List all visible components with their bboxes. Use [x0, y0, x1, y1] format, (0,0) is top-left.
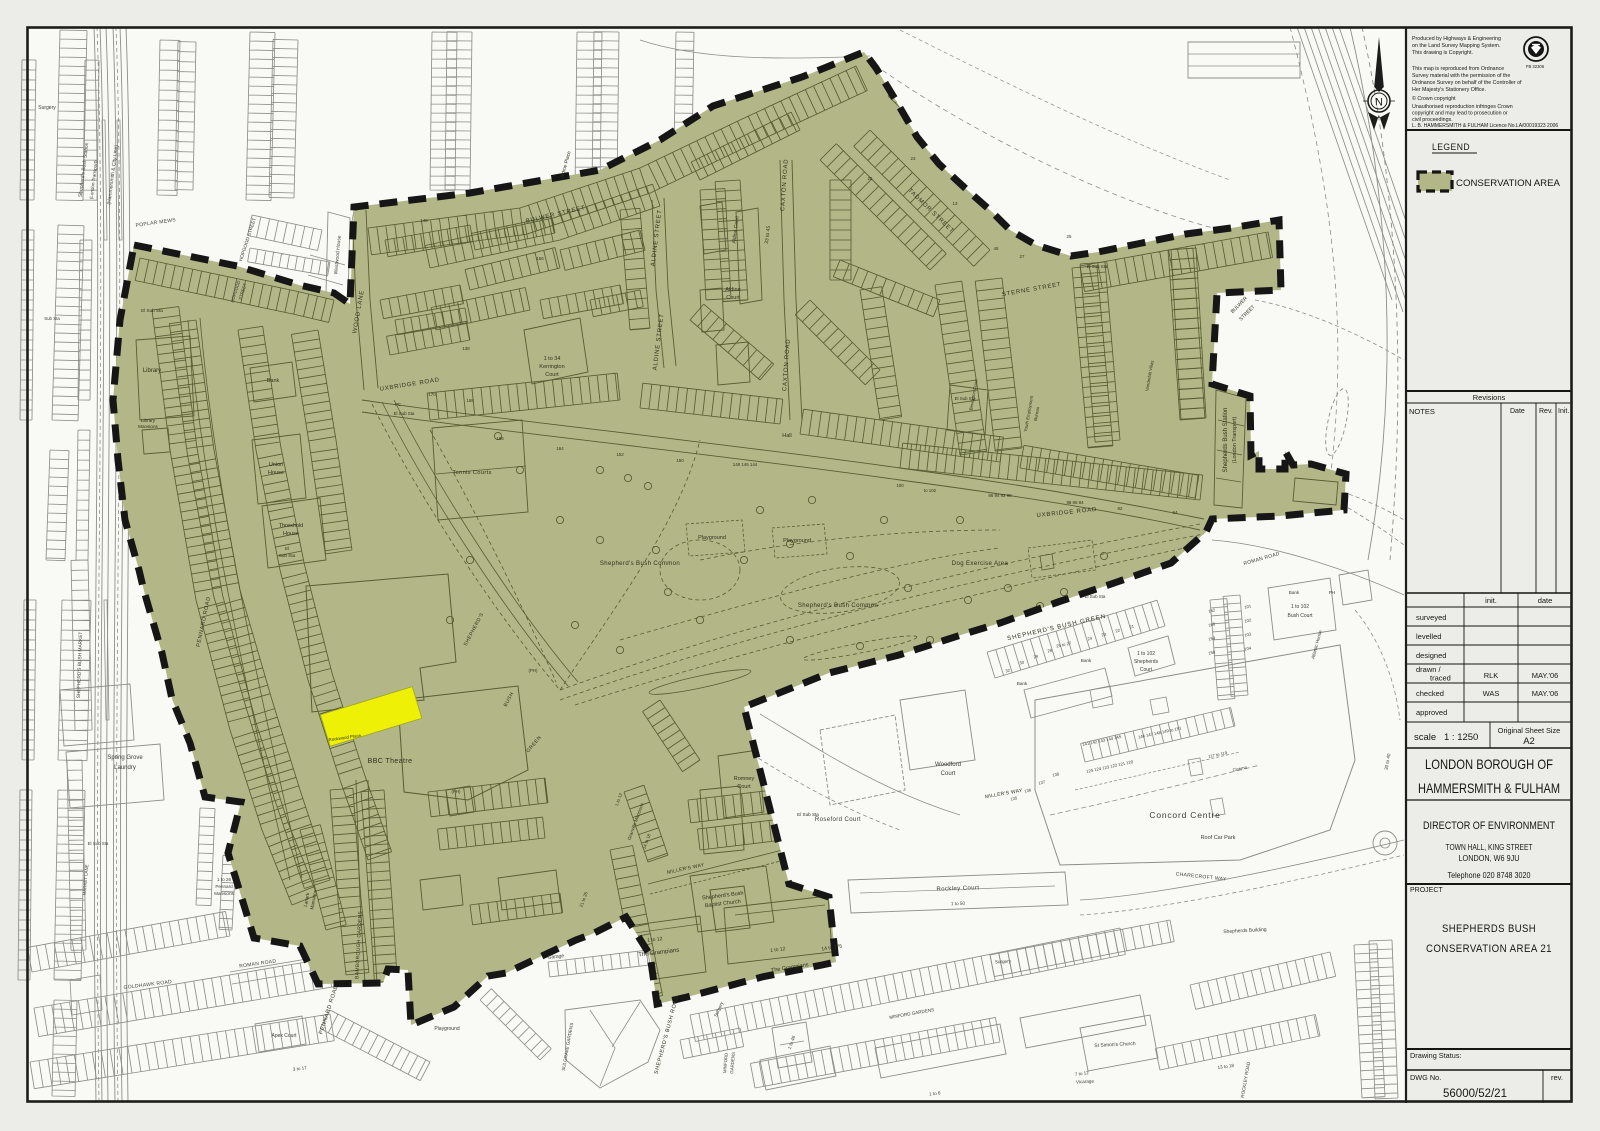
svg-text:This drawing is Copyright.: This drawing is Copyright. [1412, 50, 1473, 56]
svg-text:House: House [268, 470, 284, 476]
svg-text:1 to 102: 1 to 102 [1137, 651, 1155, 657]
svg-text:Telephone 020 8748 3020: Telephone 020 8748 3020 [1448, 870, 1531, 880]
svg-text:Roseford Court: Roseford Court [815, 817, 861, 823]
svg-text:Laundry: Laundry [114, 765, 136, 771]
svg-text:168: 168 [466, 398, 474, 403]
svg-text:Court: Court [545, 372, 559, 378]
svg-text:CONSERVATION AREA 21: CONSERVATION AREA 21 [1426, 943, 1552, 955]
svg-text:N: N [1375, 97, 1383, 109]
svg-text:(PH): (PH) [451, 789, 461, 794]
svg-text:LEGEND: LEGEND [1432, 142, 1470, 153]
svg-text:(London Transport): (London Transport) [1232, 416, 1238, 463]
svg-text:25: 25 [868, 176, 873, 181]
svg-text:date: date [1538, 596, 1553, 605]
svg-text:96 94 92 90: 96 94 92 90 [988, 493, 1012, 498]
svg-text:copyright and may lead to pros: copyright and may lead to prosecution or [1412, 111, 1508, 117]
svg-text:Playground: Playground [783, 538, 811, 544]
svg-text:Spring Grove: Spring Grove [107, 755, 143, 761]
svg-text:DWG No.: DWG No. [1410, 1073, 1441, 1082]
svg-text:Apex Court: Apex Court [271, 1033, 297, 1039]
svg-text:Init.: Init. [1558, 408, 1569, 415]
svg-text:1 : 1250: 1 : 1250 [1444, 732, 1478, 743]
svg-text:23: 23 [911, 156, 916, 161]
svg-text:scale: scale [1414, 732, 1436, 743]
svg-text:82: 82 [1118, 506, 1123, 511]
svg-text:on the Land Survey Mapping Sys: on the Land Survey Mapping System. [1412, 43, 1500, 49]
svg-text:HAMMERSMITH & FULHAM: HAMMERSMITH & FULHAM [1418, 780, 1560, 796]
svg-text:1 to 26: 1 to 26 [217, 877, 231, 882]
svg-text:traced: traced [1430, 674, 1451, 683]
svg-text:150: 150 [676, 458, 684, 463]
svg-text:(PH): (PH) [528, 668, 538, 673]
svg-text:148 146 144: 148 146 144 [733, 462, 758, 467]
svg-text:45: 45 [994, 246, 999, 251]
svg-text:Mansions: Mansions [138, 424, 158, 429]
svg-text:Hall: Hall [782, 433, 791, 439]
svg-text:Bank: Bank [1081, 658, 1092, 663]
svg-text:Ordnance Survey on behalf of t: Ordnance Survey on behalf of the Control… [1412, 80, 1522, 86]
svg-text:152: 152 [616, 452, 624, 457]
svg-text:Library: Library [141, 418, 156, 423]
svg-text:25: 25 [1067, 234, 1072, 239]
svg-text:L. B. HAMMERSMITH & FULHAM L: L. B. HAMMERSMITH & FULHAM Licence No.LA… [1412, 123, 1558, 129]
svg-text:Court: Court [1140, 667, 1153, 673]
svg-text:designed: designed [1416, 651, 1446, 660]
svg-text:27: 27 [1020, 254, 1025, 259]
svg-text:Playground: Playground [434, 1026, 460, 1032]
svg-text:PH: PH [1329, 590, 1335, 595]
svg-text:approved: approved [1416, 708, 1447, 717]
svg-text:Library: Library [143, 368, 161, 374]
svg-text:© Crown copyright: © Crown copyright [1412, 95, 1456, 102]
svg-text:El Sub Sta: El Sub Sta [1087, 264, 1108, 269]
svg-text:Vicarage: Vicarage [1076, 1079, 1095, 1085]
svg-text:DIRECTOR OF ENVIRONMENT: DIRECTOR OF ENVIRONMENT [1423, 820, 1555, 832]
svg-text:148: 148 [420, 218, 428, 223]
svg-text:1 to 34: 1 to 34 [544, 356, 561, 362]
svg-text:Shepherd's Bush Common: Shepherd's Bush Common [798, 603, 878, 609]
svg-text:164: 164 [556, 446, 564, 451]
svg-text:MAY.'06: MAY.'06 [1532, 689, 1559, 698]
svg-text:Kerrington: Kerrington [539, 364, 564, 370]
svg-text:El Sub Sta: El Sub Sta [394, 411, 415, 416]
svg-text:to 102: to 102 [924, 488, 937, 493]
svg-text:El Sub Sta: El Sub Sta [88, 841, 109, 846]
svg-text:Shepherd's Bush Common: Shepherd's Bush Common [600, 561, 680, 567]
svg-text:Revisions: Revisions [1473, 393, 1506, 402]
svg-text:A2: A2 [1523, 736, 1535, 747]
svg-text:surveyed: surveyed [1416, 613, 1446, 622]
svg-text:Aldine: Aldine [725, 287, 740, 293]
svg-text:Romney: Romney [734, 776, 755, 782]
svg-text:El: El [285, 546, 289, 551]
svg-text:Sub Sta: Sub Sta [279, 553, 296, 558]
svg-text:Her Majesty's Stationery Offic: Her Majesty's Stationery Office. [1412, 87, 1486, 93]
svg-text:Bank: Bank [1017, 681, 1028, 686]
svg-text:Shepherds Bush Station: Shepherds Bush Station [1223, 408, 1229, 473]
svg-text:Dog Exercise Area: Dog Exercise Area [952, 561, 1009, 567]
svg-text:Surgery: Surgery [995, 959, 1012, 965]
svg-text:This map is reproduced from Or: This map is reproduced from Ordnance [1412, 66, 1504, 72]
svg-text:Tennis Courts: Tennis Courts [452, 470, 491, 476]
svg-text:Woodford: Woodford [935, 762, 961, 768]
svg-text:Shepherds: Shepherds [1134, 659, 1159, 665]
svg-text:WAS: WAS [1483, 689, 1500, 698]
svg-text:Survey material with the permi: Survey material with the permission of t… [1412, 73, 1510, 79]
svg-text:init.: init. [1485, 596, 1497, 605]
svg-text:Concord Centre: Concord Centre [1149, 810, 1220, 820]
svg-text:Unauthorised reproduction infr: Unauthorised reproduction infringes Crow… [1412, 104, 1513, 110]
svg-text:PC: PC [395, 402, 401, 407]
svg-text:checked: checked [1416, 689, 1444, 698]
svg-text:LONDON, W6 9JU: LONDON, W6 9JU [1459, 853, 1520, 863]
svg-text:Union: Union [269, 462, 283, 468]
svg-text:Court: Court [941, 771, 956, 777]
svg-text:138: 138 [462, 346, 470, 351]
svg-text:Bush Court: Bush Court [1287, 613, 1313, 619]
svg-text:Bank: Bank [267, 378, 280, 384]
svg-text:Rev.: Rev. [1539, 408, 1553, 415]
svg-text:88 86 84: 88 86 84 [1066, 500, 1084, 505]
svg-text:Surgery: Surgery [38, 105, 56, 111]
svg-text:Produced by Highways & Enginee: Produced by Highways & Engineering [1412, 36, 1501, 42]
svg-text:PROJECT: PROJECT [1410, 887, 1443, 894]
svg-text:House: House [283, 531, 299, 537]
svg-text:BBC Theatre: BBC Theatre [368, 758, 413, 765]
svg-text:levelled: levelled [1416, 632, 1441, 641]
svg-text:Bank: Bank [1289, 590, 1300, 595]
svg-text:El Sub Sta: El Sub Sta [141, 308, 163, 313]
svg-text:Drawing Status:: Drawing Status: [1410, 1051, 1462, 1060]
svg-text:TOWN HALL, KING STREET: TOWN HALL, KING STREET [1446, 842, 1534, 852]
svg-text:1 to 50: 1 to 50 [951, 901, 966, 907]
svg-text:56000/52/21: 56000/52/21 [1443, 1088, 1507, 1100]
svg-text:El Sub Sta: El Sub Sta [1085, 594, 1106, 599]
svg-text:64: 64 [1173, 510, 1178, 515]
svg-text:Roof Car Park: Roof Car Park [1201, 835, 1236, 841]
svg-text:156: 156 [536, 256, 544, 261]
svg-text:rev.: rev. [1551, 1073, 1563, 1082]
svg-text:CONSERVATION AREA: CONSERVATION AREA [1456, 178, 1561, 188]
svg-text:LONDON BOROUGH OF: LONDON BOROUGH OF [1425, 756, 1553, 772]
svg-text:13: 13 [953, 201, 958, 206]
svg-text:NOTES: NOTES [1409, 407, 1435, 416]
svg-text:100: 100 [896, 483, 904, 488]
svg-text:Court: Court [726, 295, 740, 301]
svg-text:Mansions: Mansions [214, 891, 234, 896]
svg-text:166: 166 [496, 436, 504, 441]
svg-text:Threshold: Threshold [279, 523, 303, 529]
svg-text:RLK: RLK [1484, 671, 1499, 680]
svg-text:SHEPHERDS BUSH: SHEPHERDS BUSH [1442, 923, 1536, 935]
svg-text:FB 32306: FB 32306 [1526, 64, 1545, 69]
svg-text:1 to 102: 1 to 102 [1291, 604, 1309, 610]
svg-text:Sub Sta: Sub Sta [44, 316, 60, 321]
svg-text:MAY.'06: MAY.'06 [1532, 671, 1559, 680]
svg-text:Court: Court [737, 784, 751, 790]
svg-text:Pennard: Pennard [215, 884, 233, 889]
svg-text:Original Sheet Size: Original Sheet Size [1498, 726, 1560, 735]
svg-text:Date: Date [1510, 408, 1525, 415]
svg-text:Playground: Playground [698, 535, 726, 541]
svg-text:170: 170 [428, 392, 436, 397]
